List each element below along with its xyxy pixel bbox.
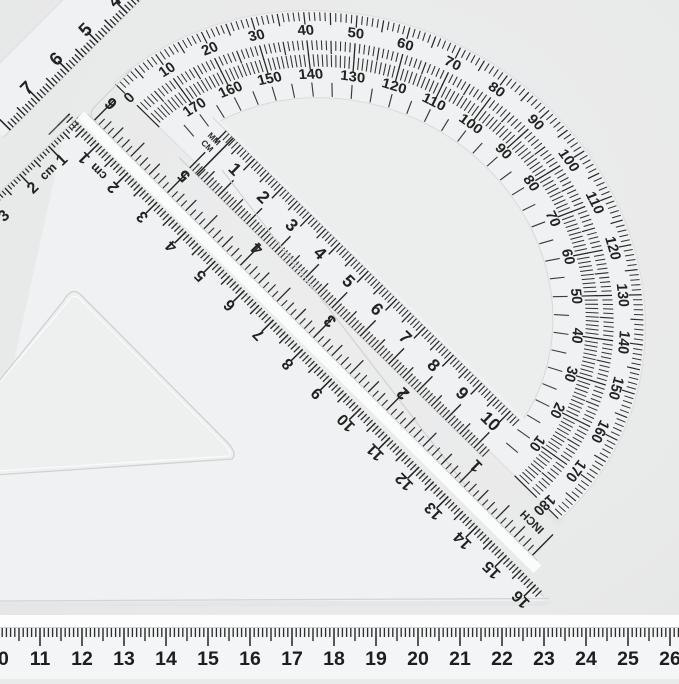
svg-text:20: 20 [407,648,429,670]
svg-text:18: 18 [323,648,345,670]
svg-text:24: 24 [575,648,597,670]
svg-text:130: 130 [613,283,632,307]
svg-text:14: 14 [155,648,177,670]
svg-text:26: 26 [659,648,679,670]
svg-text:140: 140 [614,329,632,355]
svg-text:40: 40 [297,23,315,39]
svg-text:25: 25 [617,648,639,670]
svg-text:13: 13 [113,648,135,670]
svg-text:19: 19 [365,648,387,670]
svg-text:23: 23 [533,648,555,670]
svg-text:21: 21 [449,648,471,670]
svg-text:140: 140 [298,67,325,83]
svg-text:50: 50 [567,288,585,304]
svg-text:17: 17 [281,648,303,670]
svg-text:12: 12 [71,648,93,670]
svg-text:50: 50 [347,25,365,43]
svg-text:16: 16 [239,648,261,670]
svg-text:40: 40 [568,327,586,345]
svg-text:11: 11 [30,648,51,670]
svg-text:10: 10 [0,648,9,670]
svg-text:22: 22 [491,648,513,670]
svg-text:15: 15 [197,648,219,670]
